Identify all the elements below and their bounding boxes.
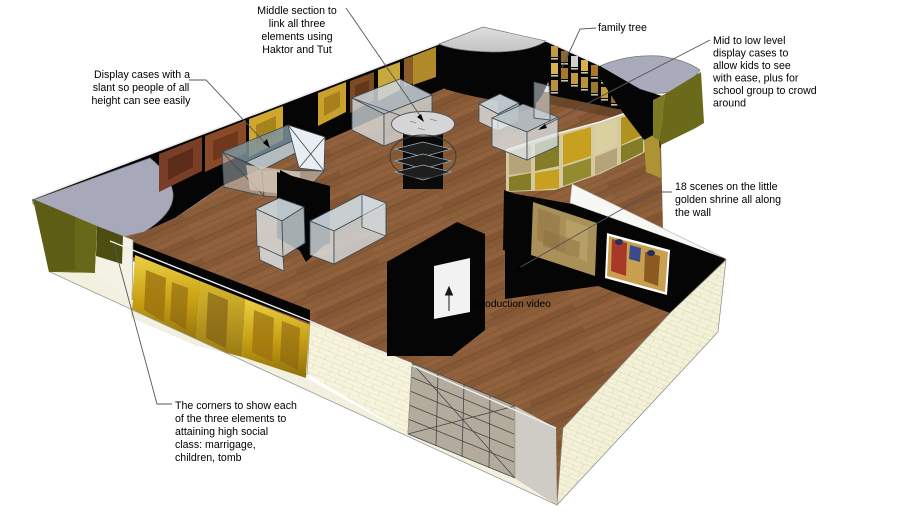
svg-text:display cases to: display cases to bbox=[713, 48, 788, 60]
svg-text:children, tomb: children, tomb bbox=[175, 452, 242, 464]
svg-text:Mid to low level: Mid to low level bbox=[713, 35, 785, 47]
svg-text:link all three: link all three bbox=[269, 18, 326, 30]
svg-text:height can see easily: height can see easily bbox=[92, 95, 192, 107]
svg-text:family tree: family tree bbox=[598, 22, 647, 34]
svg-text:the wall: the wall bbox=[675, 207, 711, 219]
svg-text:slant so people of all: slant so people of all bbox=[93, 82, 190, 94]
svg-text:Display cases with a: Display cases with a bbox=[94, 69, 190, 81]
svg-text:school group to crowd: school group to crowd bbox=[713, 85, 817, 97]
svg-text:elements using: elements using bbox=[261, 31, 332, 43]
svg-text:with ease, plus for: with ease, plus for bbox=[712, 73, 799, 85]
svg-text:of the three elements to: of the three elements to bbox=[175, 413, 286, 425]
svg-text:The corners to show each: The corners to show each bbox=[175, 400, 297, 412]
svg-text:introduction video: introduction video bbox=[471, 299, 551, 310]
svg-text:golden shrine all along: golden shrine all along bbox=[675, 194, 781, 206]
svg-text:allow kids to see: allow kids to see bbox=[713, 60, 791, 72]
svg-text:attaining high social: attaining high social bbox=[175, 426, 268, 438]
svg-text:Middle section to: Middle section to bbox=[257, 5, 337, 17]
svg-text:around: around bbox=[713, 98, 746, 110]
svg-text:18 scenes on the little: 18 scenes on the little bbox=[675, 181, 778, 193]
svg-text:class: marrigage,: class: marrigage, bbox=[175, 439, 256, 451]
svg-text:Haktor and Tut: Haktor and Tut bbox=[262, 44, 332, 56]
